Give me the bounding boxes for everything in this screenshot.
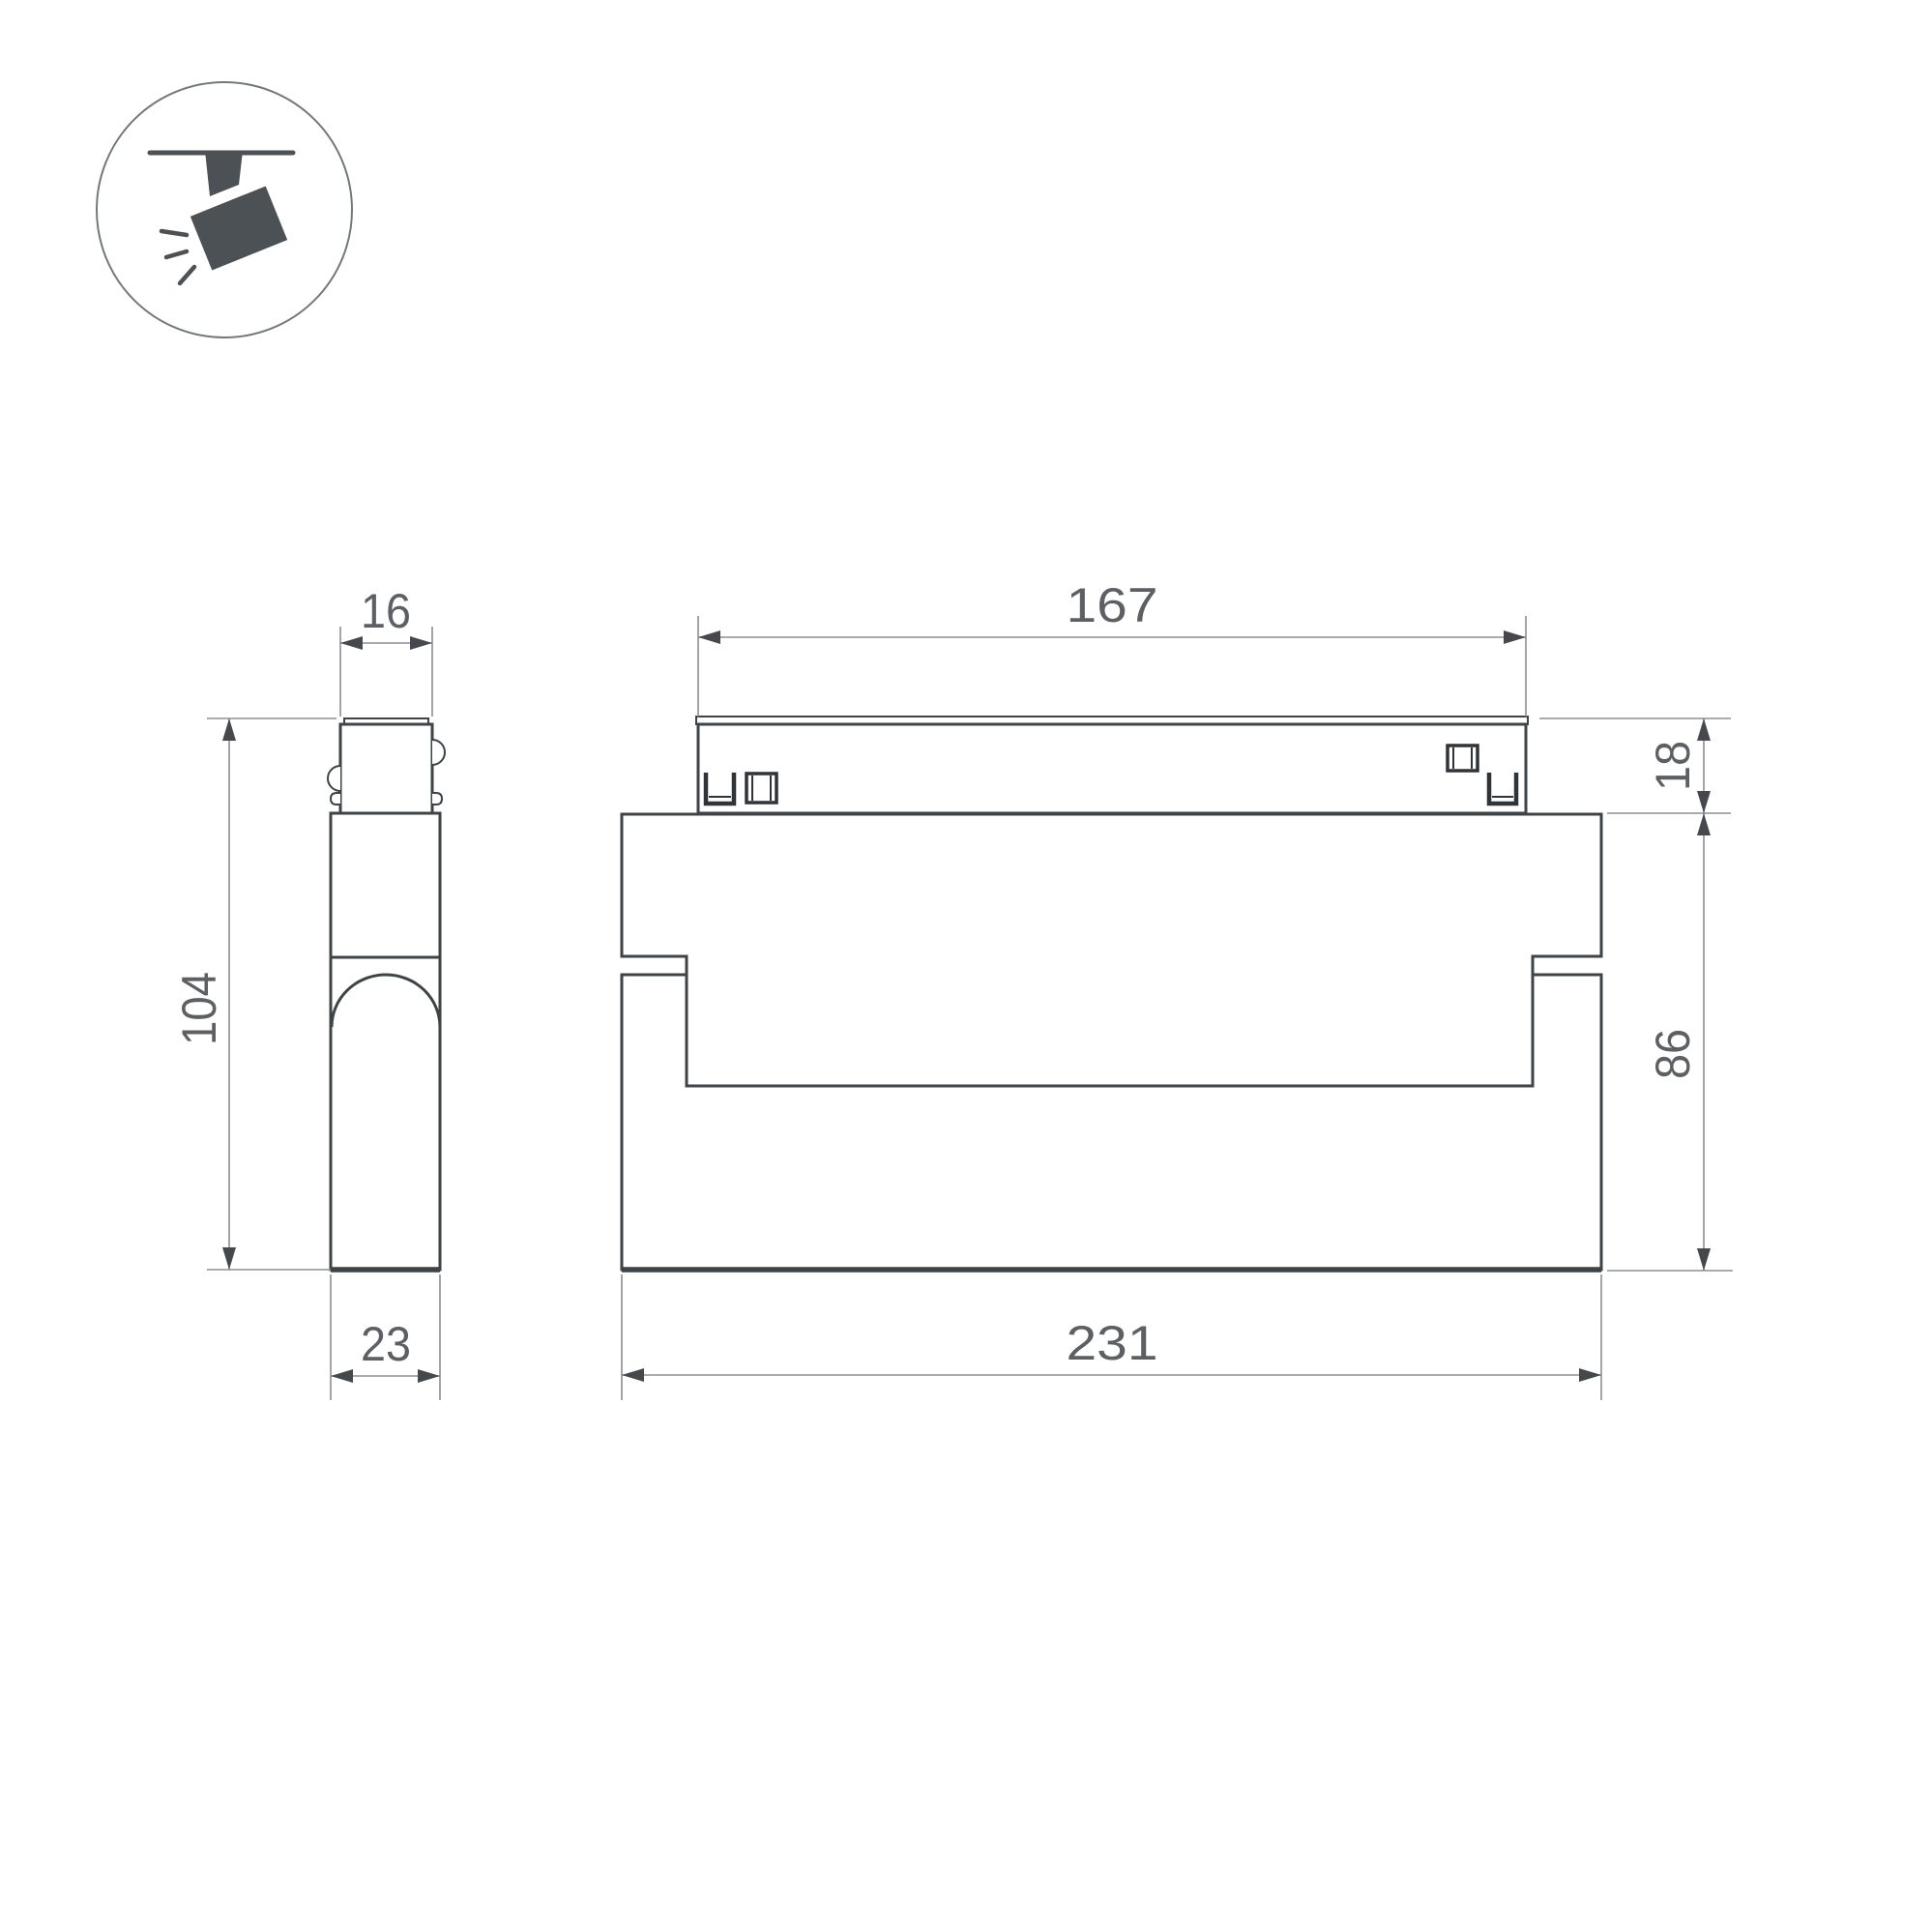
drawing-canvas: 167 18 86 231 — [0, 0, 1932, 1932]
arrowhead-right — [1579, 1368, 1601, 1382]
arrowhead-right — [410, 636, 432, 650]
arrowhead-up — [222, 718, 236, 741]
dim-front-top-height: 18 — [1539, 718, 1731, 813]
dim-label: 104 — [172, 972, 226, 1045]
front-track-adapter — [698, 724, 1526, 813]
dim-label: 18 — [1646, 741, 1700, 791]
dim-label: 231 — [1067, 1316, 1158, 1370]
arrowhead-down — [222, 1247, 236, 1270]
dim-front-total-width: 231 — [622, 1274, 1601, 1400]
dim-front-top-width: 167 — [698, 578, 1526, 717]
arrowhead-left — [331, 1369, 353, 1383]
arrowhead-down — [1697, 791, 1711, 813]
arrowhead-right — [418, 1369, 440, 1383]
track-light-icon — [97, 82, 352, 337]
side-view — [328, 718, 445, 1270]
arrowhead-down — [1697, 1248, 1711, 1271]
side-body — [331, 813, 440, 1270]
dim-side-bottom-width: 23 — [331, 1274, 440, 1400]
dim-label: 16 — [361, 584, 411, 638]
side-right-bump — [432, 740, 445, 765]
extension-lines — [207, 718, 337, 1270]
dim-side-top-width: 16 — [340, 584, 432, 717]
dim-label: 23 — [361, 1317, 411, 1371]
dim-side-total-height: 104 — [172, 718, 337, 1270]
dim-label: 167 — [1067, 578, 1158, 632]
dim-label: 86 — [1646, 1029, 1700, 1079]
front-body-upper — [622, 814, 1601, 1086]
arrowhead-up — [1697, 718, 1711, 741]
arrowhead-left — [340, 636, 363, 650]
side-left-tab — [331, 793, 340, 805]
side-left-bump — [328, 766, 340, 791]
side-track-adapter — [340, 724, 432, 813]
dimension-drawing: 167 18 86 231 — [0, 0, 1932, 1932]
arrowhead-left — [698, 630, 720, 644]
arrowhead-up — [1697, 813, 1711, 835]
dim-front-body-height: 86 — [1607, 813, 1733, 1271]
front-view — [622, 717, 1601, 1270]
arrowhead-left — [622, 1368, 644, 1382]
arrowhead-right — [1504, 630, 1526, 644]
side-right-tab — [432, 793, 442, 805]
